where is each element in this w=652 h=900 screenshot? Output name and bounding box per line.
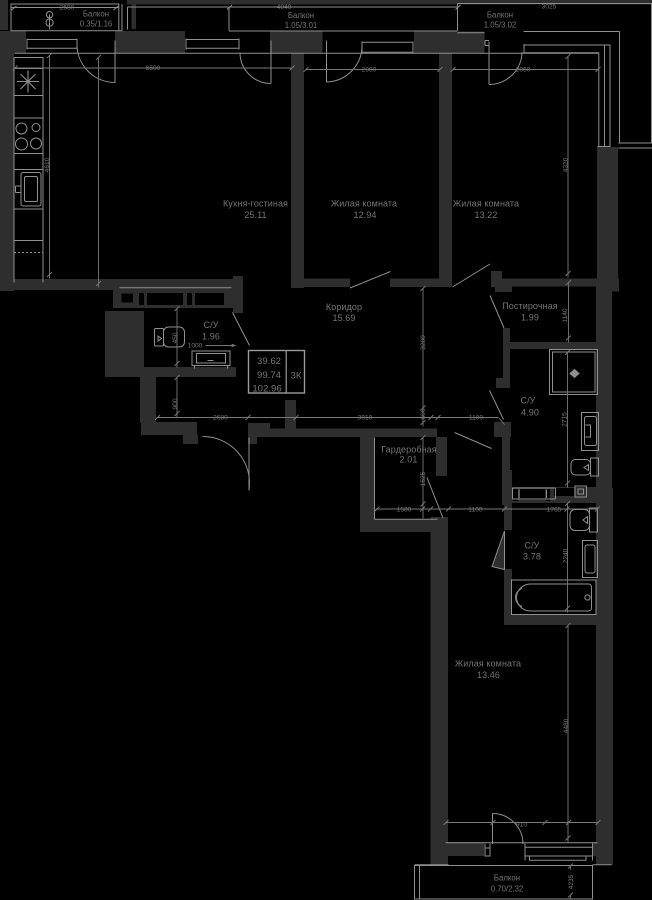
svg-text:Балкон: Балкон — [288, 11, 314, 20]
svg-text:1.05/3.01: 1.05/3.01 — [285, 21, 318, 30]
svg-text:С/У: С/У — [520, 396, 535, 406]
svg-text:13.46: 13.46 — [477, 670, 500, 680]
svg-text:3200: 3200 — [420, 335, 427, 350]
svg-text:13.22: 13.22 — [474, 210, 497, 220]
svg-text:600: 600 — [420, 408, 427, 419]
svg-text:С/У: С/У — [524, 541, 539, 551]
svg-text:2680: 2680 — [213, 415, 228, 422]
svg-text:2715: 2715 — [562, 412, 569, 427]
svg-text:Постирочная: Постирочная — [502, 301, 558, 311]
svg-text:6500: 6500 — [146, 65, 161, 72]
svg-text:99.74: 99.74 — [257, 370, 282, 381]
svg-text:Коридор: Коридор — [326, 302, 362, 312]
svg-text:12.94: 12.94 — [353, 210, 376, 220]
svg-text:3.78: 3.78 — [523, 552, 541, 562]
svg-text:2680: 2680 — [60, 5, 75, 12]
svg-text:Жилая комната: Жилая комната — [331, 199, 397, 209]
svg-text:Балкон: Балкон — [487, 11, 513, 20]
svg-text:Кухня-гостиная: Кухня-гостиная — [223, 199, 288, 209]
svg-text:1765: 1765 — [547, 507, 562, 514]
svg-text:4610: 4610 — [44, 157, 51, 172]
svg-text:1.96: 1.96 — [202, 332, 220, 342]
svg-text:1500: 1500 — [397, 507, 412, 514]
svg-text:450: 450 — [172, 332, 179, 343]
svg-text:4040: 4040 — [277, 4, 292, 11]
svg-text:2060: 2060 — [516, 67, 531, 74]
svg-text:2.01: 2.01 — [400, 455, 418, 465]
svg-text:Гардеробная: Гардеробная — [381, 445, 437, 455]
svg-text:Балкон: Балкон — [83, 10, 109, 19]
svg-text:4235: 4235 — [568, 874, 575, 889]
svg-text:1.99: 1.99 — [521, 313, 539, 323]
svg-text:0.70/2.32: 0.70/2.32 — [491, 885, 524, 894]
svg-text:900: 900 — [172, 398, 179, 409]
svg-text:39.62: 39.62 — [257, 356, 281, 367]
svg-text:4480: 4480 — [563, 718, 570, 733]
svg-text:1100: 1100 — [469, 415, 484, 422]
svg-text:Жилая комната: Жилая комната — [455, 659, 521, 669]
svg-text:3К: 3К — [291, 371, 302, 382]
svg-text:1525: 1525 — [420, 471, 427, 486]
svg-text:4320: 4320 — [563, 157, 570, 172]
svg-text:Балкон: Балкон — [494, 874, 520, 883]
svg-text:0.35/1.16: 0.35/1.16 — [80, 20, 113, 29]
svg-text:910: 910 — [516, 822, 527, 829]
svg-text:1100: 1100 — [468, 507, 483, 514]
svg-text:15.69: 15.69 — [332, 313, 355, 323]
svg-text:3910: 3910 — [358, 415, 373, 422]
svg-text:1.05/3.02: 1.05/3.02 — [484, 21, 517, 30]
svg-text:С/У: С/У — [203, 320, 218, 330]
svg-text:1000: 1000 — [188, 343, 203, 350]
svg-text:102.96: 102.96 — [252, 384, 281, 395]
svg-text:1140: 1140 — [562, 308, 569, 323]
svg-text:2240: 2240 — [563, 548, 570, 563]
svg-text:25.11: 25.11 — [244, 210, 266, 220]
svg-text:Жилая комната: Жилая комната — [453, 199, 519, 209]
svg-text:4.90: 4.90 — [521, 408, 539, 418]
svg-text:3025: 3025 — [542, 4, 557, 11]
svg-text:2980: 2980 — [362, 67, 377, 74]
